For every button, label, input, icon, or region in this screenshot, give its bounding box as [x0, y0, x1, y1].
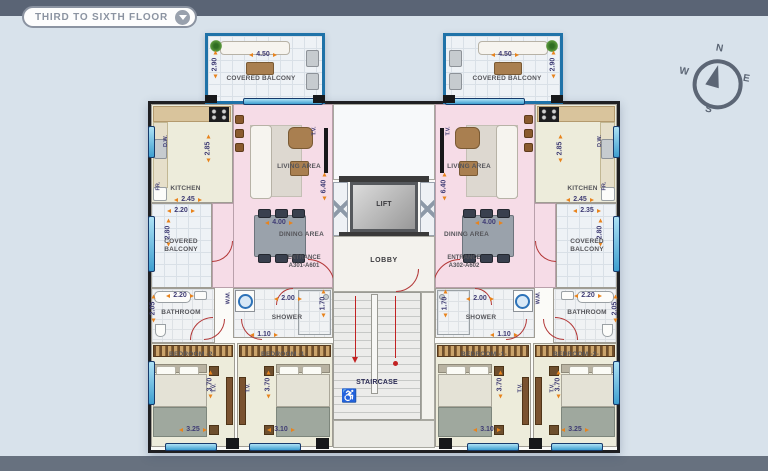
- entrance-label: ENTRANCE A301-A601: [276, 255, 332, 270]
- wm-label: W.M.: [535, 292, 541, 305]
- dim: 2.85: [557, 129, 564, 169]
- room-label: DINING AREA: [439, 231, 494, 239]
- room-label: SHOWER: [261, 314, 313, 322]
- dim: 3.10: [462, 426, 512, 433]
- dim: 2.00: [458, 295, 502, 302]
- bottom-chrome-bar: [0, 456, 768, 471]
- dw-label: D.W.: [597, 135, 603, 147]
- dim: 3.25: [168, 426, 218, 433]
- dim: 2.20: [565, 292, 611, 299]
- dim: 4.00: [251, 219, 307, 226]
- tv-label: T.V.: [445, 127, 451, 136]
- tv-label: T.V.: [311, 127, 317, 136]
- room-label: SHOWER: [455, 314, 507, 322]
- room-label: BATHROOM: [152, 309, 210, 317]
- compass-rose: N E S W: [670, 36, 763, 129]
- room-label: COVERED BALCONY: [562, 238, 612, 254]
- dim: 2.45: [555, 196, 605, 203]
- entrance-line1: ENTRANCE: [447, 255, 480, 261]
- dim: 1.10: [244, 331, 284, 338]
- fr-label: FR.: [155, 182, 161, 191]
- room-label: COVERED BALCONY: [472, 75, 542, 83]
- tv-label: T.V.: [211, 384, 217, 393]
- dim: 3.10: [256, 426, 306, 433]
- entrance-label: ENTRANCE A302-A602: [436, 255, 492, 270]
- dim: 2.00: [266, 295, 310, 302]
- dw-label: D.W.: [163, 135, 169, 147]
- room-label: BEDROOM -2-: [160, 351, 224, 359]
- floor-selector-button[interactable]: THIRD TO SIXTH FLOOR: [22, 6, 197, 28]
- dim: 3.70: [555, 365, 562, 405]
- dim: 6.40: [441, 167, 448, 207]
- compass-e: E: [742, 73, 750, 85]
- dim: 2.20: [157, 292, 203, 299]
- floor-selector-label: THIRD TO SIXTH FLOOR: [35, 12, 168, 23]
- dim: 2.90: [550, 45, 557, 85]
- compass-w: W: [678, 66, 689, 78]
- floor-plan: ♿ 4.50 2.90 COVERED BALCONY KITCHEN 2.45…: [148, 33, 620, 457]
- dim: 3.70: [497, 365, 504, 405]
- dim: 6.40: [321, 167, 328, 207]
- dim: 4.00: [461, 219, 517, 226]
- entrance-line2: A302-A602: [449, 263, 480, 269]
- room-label: BATHROOM: [558, 309, 616, 317]
- room-label: DINING AREA: [274, 231, 329, 239]
- compass-n: N: [715, 43, 724, 55]
- tv-label: T.V.: [549, 384, 555, 393]
- dim: 1.10: [484, 331, 524, 338]
- dim: 3.70: [265, 365, 272, 405]
- room-label: KITCHEN: [158, 185, 213, 193]
- dim: 2.85: [205, 129, 212, 169]
- entrance-line2: A301-A601: [289, 263, 320, 269]
- tv-label: T.V.: [517, 384, 523, 393]
- fr-label: FR.: [601, 182, 607, 191]
- room-label: COVERED BALCONY: [226, 75, 296, 83]
- lobby-label: LOBBY: [333, 257, 435, 265]
- dim: 1.70: [442, 287, 449, 321]
- room-label: BEDROOM -1-: [250, 351, 318, 359]
- room-label: BEDROOM -1-: [450, 351, 518, 359]
- compass-s: S: [704, 104, 712, 116]
- plan-labels: 4.50 2.90 COVERED BALCONY KITCHEN 2.45 2…: [148, 33, 620, 457]
- entrance-line1: ENTRANCE: [287, 255, 320, 261]
- room-label: COVERED BALCONY: [156, 238, 206, 254]
- dim: 2.90: [212, 45, 219, 85]
- staircase-label: STAIRCASE: [335, 379, 419, 387]
- chevron-down-icon[interactable]: [175, 10, 190, 25]
- dim: 4.50: [235, 51, 291, 58]
- wm-label: W.M.: [225, 292, 231, 305]
- dim: 1.70: [320, 287, 327, 321]
- dim: 3.25: [550, 426, 600, 433]
- lift-label: LIFT: [341, 201, 427, 209]
- tv-label: T.V.: [245, 384, 251, 393]
- dim: 2.45: [163, 196, 213, 203]
- dim: 4.50: [477, 51, 533, 58]
- room-label: BEDROOM -2-: [544, 351, 608, 359]
